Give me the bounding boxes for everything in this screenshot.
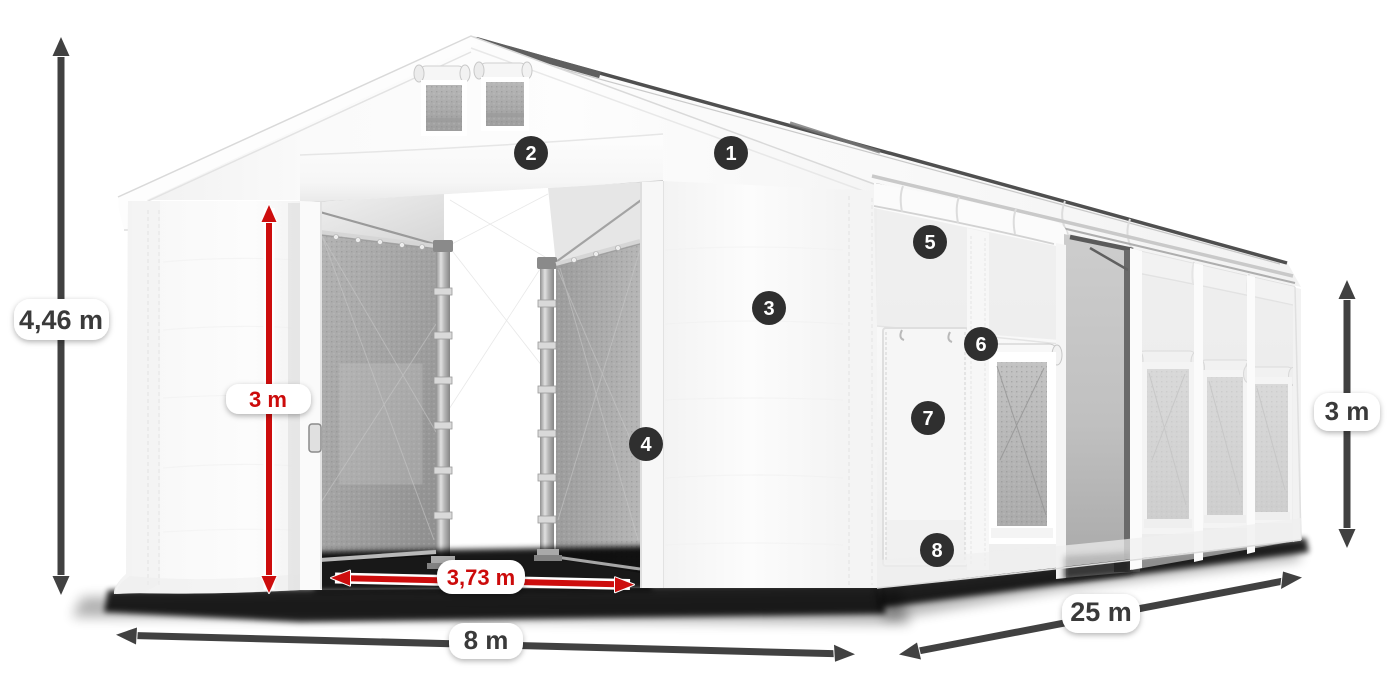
svg-text:3,73 m: 3,73 m	[447, 565, 516, 590]
svg-text:8 m: 8 m	[464, 625, 509, 655]
svg-text:3 m: 3 m	[249, 387, 287, 412]
svg-text:4,46 m: 4,46 m	[19, 305, 103, 335]
svg-text:3 m: 3 m	[1325, 396, 1370, 426]
svg-text:1: 1	[725, 143, 736, 165]
svg-text:8: 8	[931, 540, 942, 562]
svg-text:2: 2	[525, 143, 536, 165]
svg-text:3: 3	[763, 298, 774, 320]
svg-text:25 m: 25 m	[1070, 597, 1132, 627]
svg-text:7: 7	[922, 408, 933, 430]
svg-text:5: 5	[924, 232, 935, 254]
svg-text:4: 4	[640, 434, 652, 456]
svg-text:6: 6	[975, 334, 986, 356]
